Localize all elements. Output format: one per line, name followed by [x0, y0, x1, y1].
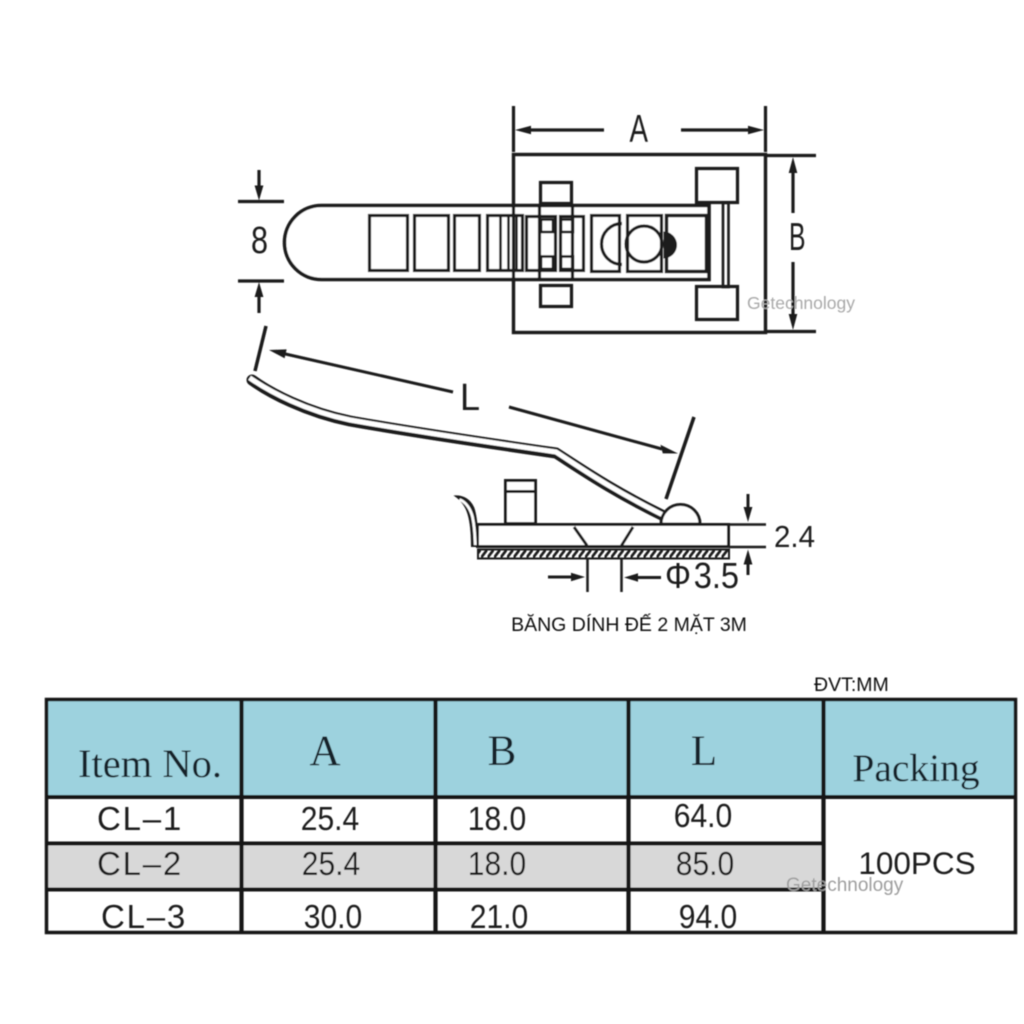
svg-text:Item No.: Item No.	[78, 741, 222, 786]
svg-text:25.4: 25.4	[302, 845, 361, 882]
svg-text:A: A	[309, 728, 340, 775]
svg-text:Packing: Packing	[852, 746, 979, 790]
svg-text:CL–2: CL–2	[97, 845, 183, 882]
svg-text:L: L	[691, 728, 717, 775]
svg-text:85.0: 85.0	[676, 845, 735, 882]
svg-text:ĐVT:MM: ĐVT:MM	[814, 674, 889, 696]
svg-text:8: 8	[251, 220, 268, 262]
svg-text:B: B	[789, 216, 806, 259]
svg-text:21.0: 21.0	[470, 898, 529, 935]
svg-text:25.4: 25.4	[301, 800, 360, 837]
svg-text:A: A	[630, 108, 649, 151]
svg-text:CL–3: CL–3	[101, 898, 187, 935]
svg-text:94.0: 94.0	[679, 898, 738, 935]
svg-text:Getechnology: Getechnology	[786, 875, 904, 896]
svg-text:2.4: 2.4	[774, 519, 815, 554]
svg-text:Φ 3.5: Φ 3.5	[665, 555, 739, 596]
svg-text:30.0: 30.0	[304, 898, 363, 935]
svg-text:64.0: 64.0	[674, 797, 733, 834]
svg-text:L: L	[460, 377, 480, 419]
svg-text:B: B	[488, 728, 517, 775]
svg-text:BĂNG DÍNH ĐẾ 2 MẶT 3M: BĂNG DÍNH ĐẾ 2 MẶT 3M	[511, 613, 747, 636]
svg-text:18.0: 18.0	[468, 800, 527, 837]
svg-text:CL–1: CL–1	[97, 800, 183, 837]
svg-text:Getechnology: Getechnology	[747, 293, 855, 313]
svg-text:18.0: 18.0	[468, 845, 527, 882]
